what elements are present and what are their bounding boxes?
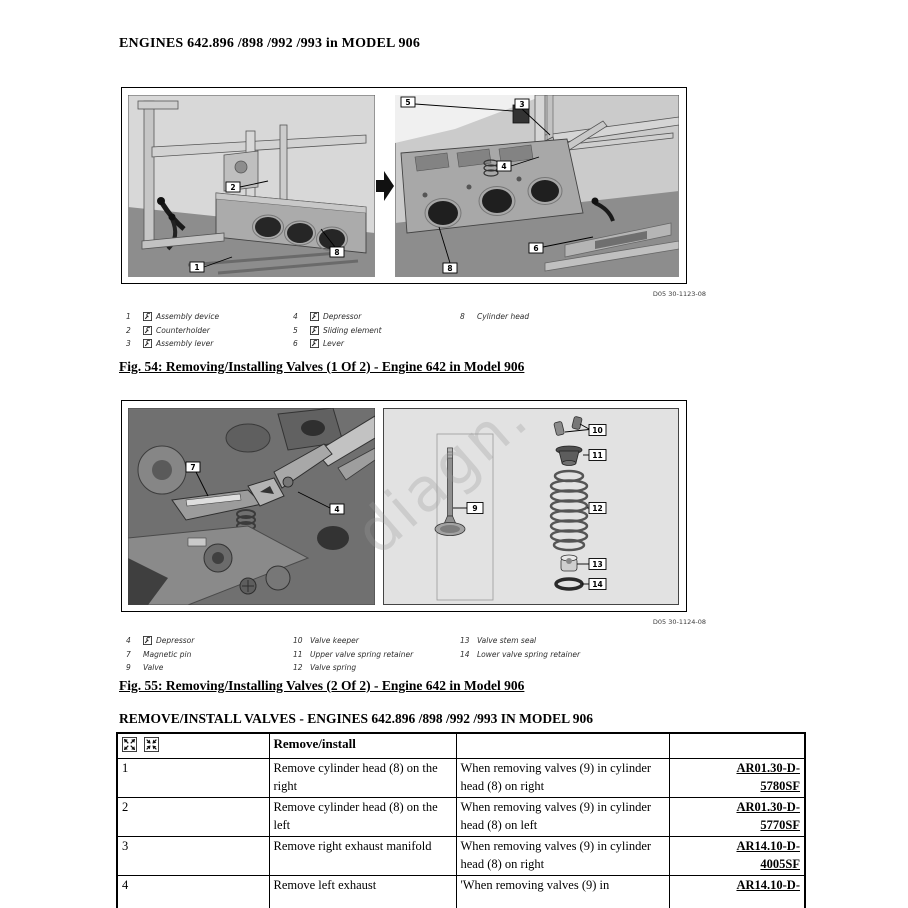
table-header-empty-1 <box>456 733 669 759</box>
svg-text:4: 4 <box>334 505 339 514</box>
link-cell: AR01.30-D-5780SF <box>669 759 805 798</box>
figure1-photo-right: 5 3 4 6 8 <box>395 95 679 277</box>
step-cell: Remove cylinder head (8) on the left <box>269 798 456 837</box>
special-tool-icon <box>143 636 156 645</box>
figure2-ref-code: D05 30-1124-08 <box>420 618 706 626</box>
figure1-legend: 1 Assembly device 2 Counterholder 3 Asse… <box>0 310 700 354</box>
section-title: REMOVE/INSTALL VALVES - ENGINES 642.896 … <box>119 711 593 727</box>
legend-item: 14 Lower valve spring retainer <box>460 647 580 660</box>
svg-text:11: 11 <box>592 451 602 460</box>
svg-text:12: 12 <box>592 504 602 513</box>
svg-text:7: 7 <box>190 463 195 472</box>
special-tool-icon <box>143 326 156 335</box>
figure1-caption: Fig. 54: Removing/Installing Valves (1 O… <box>119 359 524 375</box>
note-cell: When removing valves (9) in cylinder hea… <box>456 837 669 876</box>
procedure-link[interactable]: AR01.30-D-5770SF <box>674 799 801 834</box>
svg-text:8: 8 <box>447 264 452 273</box>
special-tool-icon <box>310 326 323 335</box>
table-header-empty-2 <box>669 733 805 759</box>
svg-text:6: 6 <box>533 244 538 253</box>
special-tool-icon <box>143 339 156 348</box>
legend-item: 4 Depressor <box>126 634 194 647</box>
step-number-cell: 4 <box>117 876 269 908</box>
table-header-row: Remove/install <box>117 733 805 759</box>
step-number-cell: 3 <box>117 837 269 876</box>
figure2-photo-left: 7 4 <box>128 408 375 605</box>
step-number-cell: 1 <box>117 759 269 798</box>
legend-item: 13 Valve stem seal <box>460 634 580 647</box>
legend-item: 2 Counterholder <box>126 323 219 336</box>
step-number-cell: 2 <box>117 798 269 837</box>
manual-page: ENGINES 642.896 /898 /992 /993 in MODEL … <box>0 0 908 908</box>
svg-text:8: 8 <box>334 248 339 257</box>
svg-text:1: 1 <box>194 263 199 272</box>
legend-item: 10 Valve keeper <box>293 634 413 647</box>
legend-item: 12 Valve spring <box>293 661 413 674</box>
figure2-caption: Fig. 55: Removing/Installing Valves (2 O… <box>119 678 524 694</box>
procedure-link[interactable]: AR14.10-D- <box>674 877 801 895</box>
legend-item: 4 Depressor <box>293 310 382 323</box>
legend-item: 6 Lever <box>293 337 382 350</box>
svg-text:5: 5 <box>405 98 410 107</box>
figure1-image: 2 1 8 <box>121 87 687 284</box>
transition-arrow-icon <box>375 95 395 277</box>
svg-text:13: 13 <box>592 560 602 569</box>
legend-item: 7 Magnetic pin <box>126 647 194 660</box>
step-cell: Remove left exhaust <box>269 876 456 908</box>
table-header-icons-cell <box>117 733 269 759</box>
svg-text:14: 14 <box>592 580 602 589</box>
procedure-link[interactable]: AR01.30-D-5780SF <box>674 760 801 795</box>
svg-text:3: 3 <box>519 100 524 109</box>
svg-text:10: 10 <box>592 426 602 435</box>
figure1-ref-code: D05 30-1123-08 <box>420 290 706 298</box>
legend-item: 8 Cylinder head <box>460 310 529 323</box>
special-tool-icon <box>143 312 156 321</box>
collapse-icon[interactable] <box>144 737 159 752</box>
page-title: ENGINES 642.896 /898 /992 /993 in MODEL … <box>119 36 420 52</box>
expand-icon[interactable] <box>122 737 137 752</box>
legend-item: 11 Upper valve spring retainer <box>293 647 413 660</box>
special-tool-icon <box>310 339 323 348</box>
link-cell: AR01.30-D-5770SF <box>669 798 805 837</box>
callout-label: 12 <box>587 502 606 513</box>
special-tool-icon <box>310 312 323 321</box>
svg-text:4: 4 <box>501 162 506 171</box>
link-cell: AR14.10-D-4005SF <box>669 837 805 876</box>
legend-item: 5 Sliding element <box>293 323 382 336</box>
table-row: 2 Remove cylinder head (8) on the left W… <box>117 798 805 837</box>
table-header-remove-install: Remove/install <box>269 733 456 759</box>
svg-text:2: 2 <box>230 183 235 192</box>
figure2-diagram: 9 10 11 <box>383 408 679 605</box>
svg-text:9: 9 <box>472 504 477 513</box>
figure2-image: 7 4 9 <box>121 400 687 612</box>
note-cell: When removing valves (9) in cylinder hea… <box>456 759 669 798</box>
legend-item: 3 Assembly lever <box>126 337 219 350</box>
note-cell: When removing valves (9) in cylinder hea… <box>456 798 669 837</box>
legend-item: 9 Valve <box>126 661 194 674</box>
step-cell: Remove right exhaust manifold <box>269 837 456 876</box>
procedure-link[interactable]: AR14.10-D-4005SF <box>674 838 801 873</box>
table-row: 4 Remove left exhaust 'When removing val… <box>117 876 805 908</box>
table-row: 3 Remove right exhaust manifold When rem… <box>117 837 805 876</box>
figure2-legend: 4 Depressor 7 Magnetic pin 9 Valve 10 Va… <box>0 634 700 678</box>
figure1-photo-left: 2 1 8 <box>128 95 375 277</box>
link-cell: AR14.10-D- <box>669 876 805 908</box>
procedure-table: Remove/install 1 Remove cylinder head (8… <box>116 732 806 908</box>
table-row: 1 Remove cylinder head (8) on the right … <box>117 759 805 798</box>
step-cell: Remove cylinder head (8) on the right <box>269 759 456 798</box>
legend-item: 1 Assembly device <box>126 310 219 323</box>
note-cell: 'When removing valves (9) in <box>456 876 669 908</box>
